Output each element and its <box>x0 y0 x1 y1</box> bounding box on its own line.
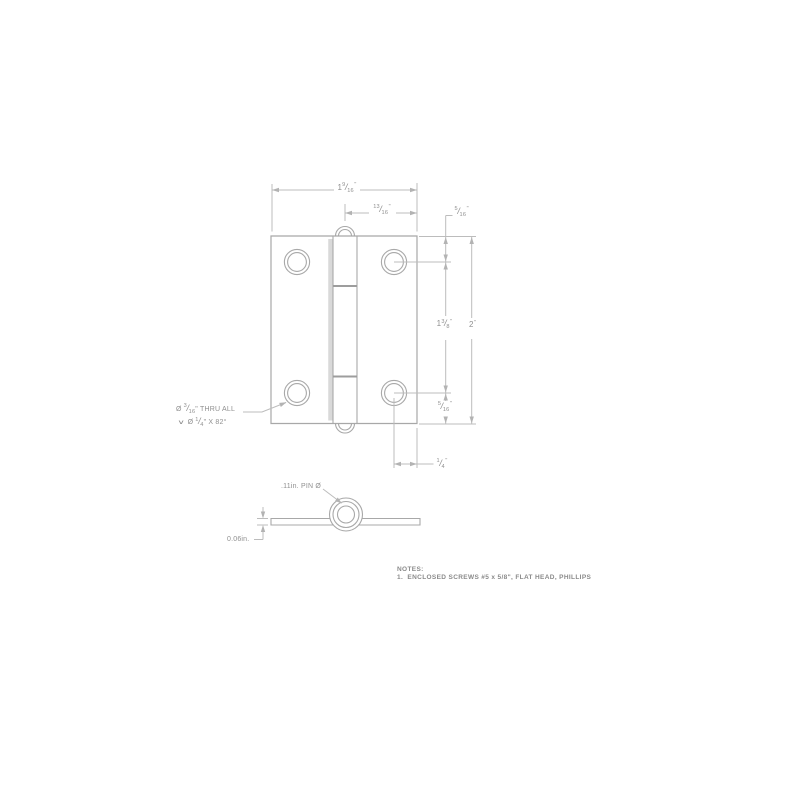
drawing-canvas: 19/16" 13/16" 5/16" 13/8" 2" 5/16" 1/4" … <box>0 0 800 800</box>
pin-end-domes <box>336 227 355 434</box>
diameter-symbol: Ø <box>176 406 182 413</box>
inch-mark: " <box>450 401 452 407</box>
arrowhead-icon <box>279 400 287 407</box>
inch-mark: " <box>389 204 391 210</box>
arrowhead-icon <box>272 188 279 192</box>
front-view <box>271 227 417 434</box>
note-item-1: 1. ENCLOSED SCREWS #5 x 5/8", FLAT HEAD,… <box>397 575 591 582</box>
hinge-drawing <box>0 0 800 800</box>
screw-hole-top-left-inner <box>288 253 307 272</box>
leaf-thickness-label: 0.06in. <box>227 536 249 543</box>
screw-hole-bottom-left-outer <box>284 380 309 405</box>
pin-hole-circle <box>338 506 355 523</box>
inch-mark: " <box>474 320 476 326</box>
dim-top-hole-offset: 5/16" <box>455 207 469 219</box>
pin-diameter-label: .11in. PIN Ø <box>281 483 321 490</box>
dim-denominator: 16 <box>382 210 389 216</box>
side-leaf-right <box>354 519 420 526</box>
arrowhead-icon <box>444 237 448 244</box>
dim-denominator: 16 <box>460 212 467 218</box>
dim-denominator: 4 <box>442 464 445 470</box>
knuckle-division-lines <box>333 286 357 377</box>
arrowhead-icon <box>261 525 265 532</box>
arrowhead-icon <box>444 263 448 270</box>
side-leaf-left <box>271 519 338 526</box>
arrowhead-icon <box>444 386 448 393</box>
screw-holes <box>284 249 406 405</box>
side-view <box>271 498 420 531</box>
arrowhead-icon <box>410 211 417 215</box>
screw-hole-bottom-left-inner <box>288 384 307 403</box>
dim-denominator: 8 <box>446 324 449 330</box>
inch-mark: " <box>467 206 469 212</box>
dim-denominator: 16 <box>443 407 450 413</box>
arrowhead-icon <box>470 237 474 244</box>
dimension-arrows <box>261 188 474 532</box>
countersink-symbol-icon: ∨ <box>177 420 185 426</box>
arrowhead-icon <box>261 512 265 519</box>
hole-callout-countersink: ∨Ø1/4" X 82° <box>179 417 227 429</box>
notes-title: NOTES: <box>397 567 424 574</box>
arrowhead-icon <box>410 462 417 466</box>
hole-callout-diameter: Ø3/16" THRU ALL <box>176 404 235 416</box>
arrowhead-icon <box>394 462 401 466</box>
arrowhead-icon <box>444 394 448 401</box>
dim-overall-height: 2" <box>469 321 476 329</box>
dim-whole: 2 <box>469 320 474 329</box>
arrowhead-icon <box>444 255 448 262</box>
dim-hole-edge-offset: 1/4" <box>437 459 448 471</box>
dim-center-to-edge: 13/16" <box>368 205 396 217</box>
arrowhead-icon <box>345 211 352 215</box>
arrowhead-icon <box>410 188 417 192</box>
dim-bottom-hole-offset: 5/16" <box>432 402 458 414</box>
diameter-symbol: Ø <box>188 419 194 426</box>
callout-text: " THRU ALL <box>195 406 235 413</box>
callout-text: " X 82° <box>204 419 227 426</box>
screw-hole-top-left-outer <box>284 249 309 274</box>
arrowhead-icon <box>470 417 474 424</box>
inch-mark: " <box>445 458 447 464</box>
dim-hole-spacing: 13/8" <box>431 319 458 331</box>
dim-overall-width: 19/16" <box>333 183 361 195</box>
hinge-barrel-lines <box>333 236 357 424</box>
dim-denominator: 16 <box>347 188 354 194</box>
inch-mark: " <box>354 182 356 188</box>
inch-mark: " <box>450 319 452 325</box>
hinge-leaf-outline <box>271 236 417 424</box>
arrowhead-icon <box>444 417 448 424</box>
